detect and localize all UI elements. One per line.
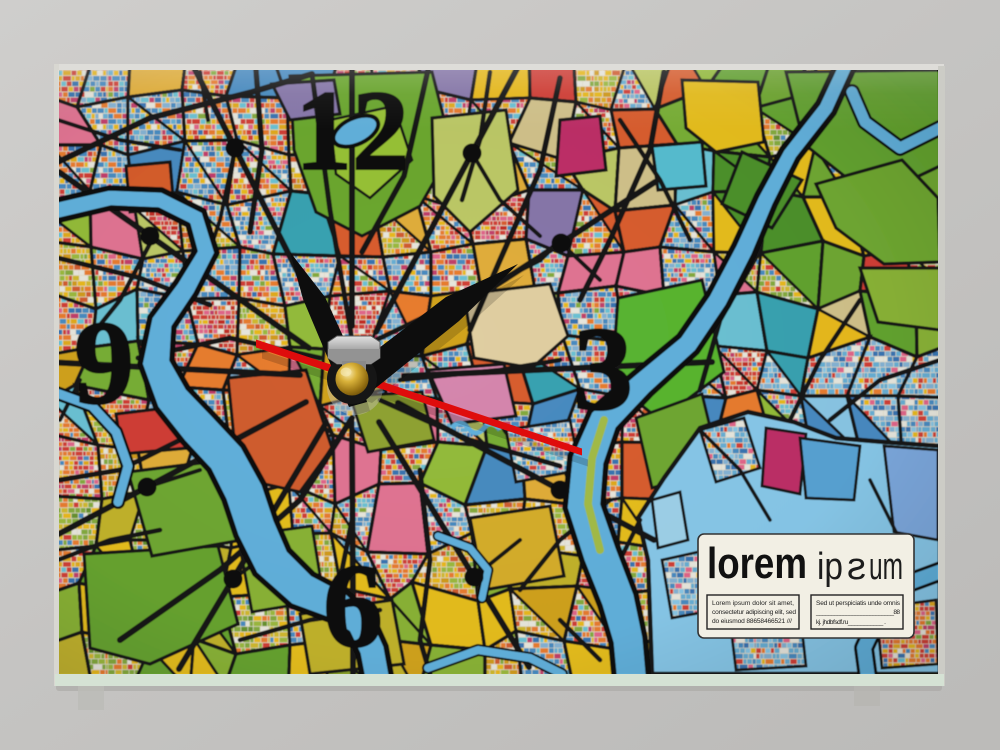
svg-text:Sed ut perspiciatis unde omnis: Sed ut perspiciatis unde omnis	[816, 600, 901, 607]
svg-text:s: s	[847, 546, 866, 588]
svg-text:kj. jhdbfsdf.ru___________ .: kj. jhdbfsdf.ru___________ .	[816, 619, 886, 626]
svg-text:Lorem ipsum dolor sit amet,: Lorem ipsum dolor sit amet,	[712, 600, 794, 607]
svg-text:do eiusmod 88658466521 ///: do eiusmod 88658466521 ///	[712, 618, 792, 625]
svg-text:consectetur adipiscing elit, s: consectetur adipiscing elit, sed	[712, 609, 796, 616]
svg-text:__________________________88: __________________________88	[815, 609, 900, 616]
svg-text:um: um	[869, 546, 903, 588]
svg-text:ip: ip	[817, 546, 843, 588]
svg-text:lorem: lorem	[707, 539, 807, 588]
